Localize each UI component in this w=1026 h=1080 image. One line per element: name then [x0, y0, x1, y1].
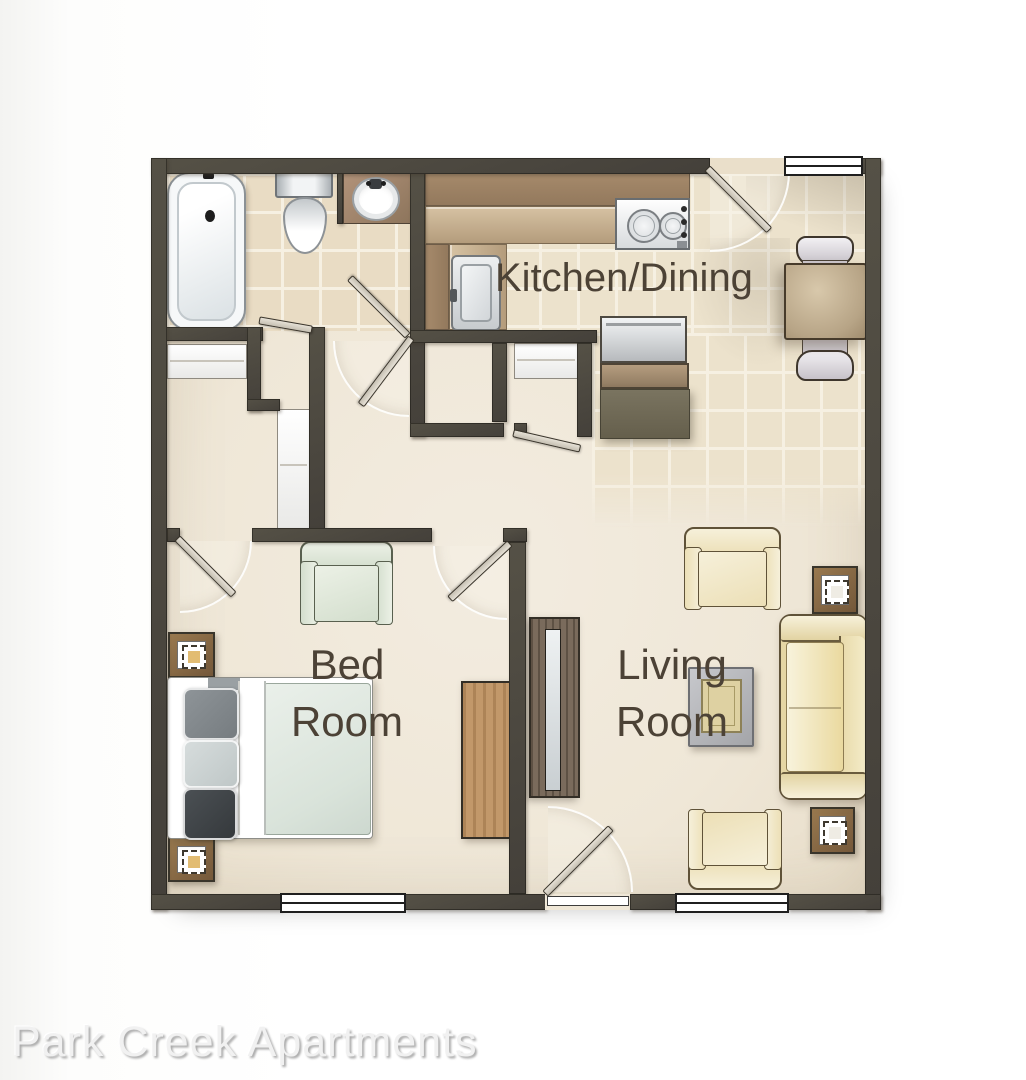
- closet-sliding-door: [167, 344, 247, 379]
- wall: [865, 158, 881, 910]
- closet-sliding-door: [277, 409, 310, 530]
- tv-screen: [545, 629, 561, 791]
- closet-sliding-door: [514, 343, 578, 379]
- window: [280, 893, 406, 913]
- living-room-label: Living Room: [572, 636, 772, 750]
- faucet-handle: [381, 181, 386, 186]
- bathtub-basin: [177, 182, 236, 321]
- pillow: [183, 740, 239, 788]
- dining-table: [784, 263, 867, 340]
- wall: [509, 542, 526, 894]
- pillow: [183, 788, 237, 840]
- living-room-label-line2: Room: [572, 693, 772, 750]
- dresser: [461, 681, 513, 839]
- faucet-handle: [366, 181, 371, 186]
- refrigerator: [600, 316, 687, 363]
- nightstand: [168, 632, 215, 678]
- wall: [410, 330, 597, 343]
- bedroom-label-line1: Bed: [247, 636, 447, 693]
- nightstand-lamp: [182, 850, 206, 874]
- bedroom-label-line2: Room: [247, 693, 447, 750]
- wall: [788, 894, 881, 910]
- wall: [151, 894, 282, 910]
- pillow: [183, 688, 239, 740]
- table-lamp: [823, 821, 847, 845]
- wall: [410, 423, 504, 437]
- table-lamp: [825, 580, 849, 604]
- window: [675, 893, 789, 913]
- wall: [405, 894, 546, 910]
- armchair: [684, 527, 781, 613]
- kitchen-dining-label: Kitchen/Dining: [495, 256, 753, 301]
- toilet-tank: [275, 171, 333, 198]
- end-table: [810, 807, 855, 854]
- sofa: [779, 614, 868, 800]
- wall: [410, 166, 425, 437]
- property-name-watermark: Park Creek Apartments: [12, 1018, 478, 1067]
- wall: [252, 528, 432, 542]
- doorway-opening: [710, 158, 784, 174]
- wall: [492, 343, 507, 422]
- bathtub-drain: [205, 210, 215, 222]
- window: [784, 156, 863, 176]
- stove-cooktop: [615, 198, 690, 250]
- wall: [247, 399, 280, 411]
- kitchen-sink: [451, 255, 501, 331]
- end-table: [812, 566, 858, 614]
- kitchen-cabinet-block: [600, 389, 690, 439]
- kitchen-cabinet-strip: [425, 244, 449, 330]
- armchair: [688, 806, 782, 890]
- living-room-label-line1: Living: [572, 636, 772, 693]
- kitchen-faucet: [450, 289, 457, 302]
- nightstand: [168, 837, 215, 882]
- refrigerator-front: [600, 363, 689, 389]
- nightstand-lamp: [182, 645, 206, 669]
- bedroom-label: Bed Room: [247, 636, 447, 750]
- kitchen-sink-basin: [460, 264, 492, 322]
- wall: [151, 158, 710, 174]
- wall: [309, 327, 325, 532]
- bathtub: [167, 172, 246, 331]
- wall: [151, 158, 167, 910]
- wall: [630, 894, 677, 910]
- dining-chair: [796, 350, 854, 381]
- floor-plan-image: Kitchen/Dining Bed Room Living Room Park…: [0, 0, 1026, 1080]
- bedroom-armchair: [300, 541, 393, 628]
- stove-panel: [677, 241, 687, 248]
- door-threshold: [547, 896, 629, 906]
- wall: [577, 343, 592, 437]
